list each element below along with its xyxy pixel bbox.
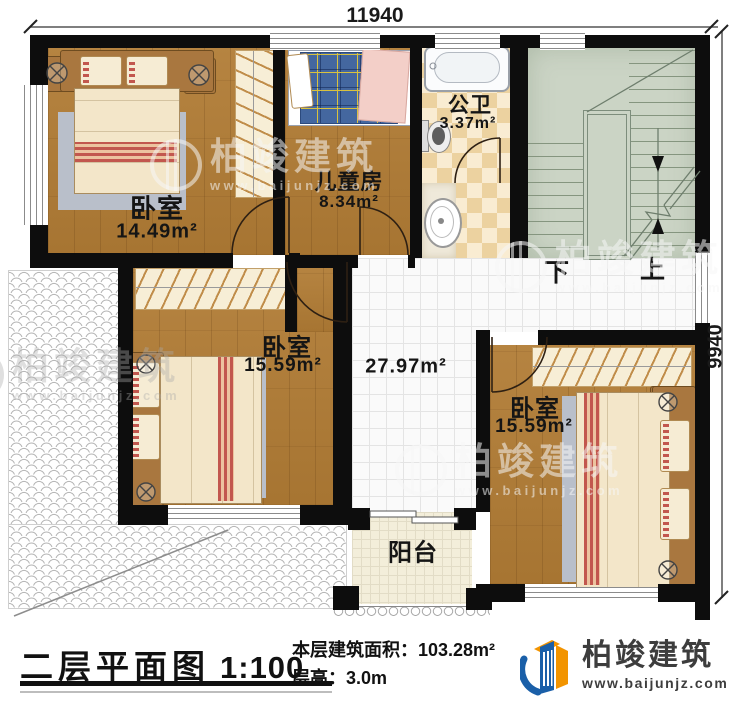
bedroom3-wardrobe <box>532 347 692 387</box>
bedroom1-bed-blanket-stripe <box>75 142 177 162</box>
kids-room-area: 8.34m² <box>319 192 379 212</box>
hall-floor-lower <box>352 258 476 512</box>
bedroom3-pillow-2 <box>660 488 690 540</box>
bathtub-basin <box>434 52 500 83</box>
bedroom2-bed-blanket-stripe <box>218 357 234 501</box>
wall <box>333 255 352 524</box>
kids-bed-pink-blanket <box>358 48 411 123</box>
title-underline-thick <box>20 681 332 686</box>
bathroom-area: 3.37m² <box>440 115 497 133</box>
bedroom2-pillow-1 <box>130 362 160 408</box>
balcony-post <box>454 508 476 530</box>
window <box>525 587 658 600</box>
wall <box>300 505 352 525</box>
balcony-post <box>466 588 492 610</box>
bedroom2-bed-quilt <box>160 356 262 504</box>
stair-treads-right <box>629 50 695 252</box>
wall <box>510 35 528 258</box>
brand-name: 柏竣建筑 <box>582 641 728 671</box>
dimension-top: 11940 <box>325 4 425 28</box>
roof-eave-bottom <box>8 524 347 609</box>
balcony-post <box>333 586 359 610</box>
window <box>270 33 380 50</box>
wall <box>273 48 285 255</box>
bedroom1-bed-quilt <box>74 88 180 194</box>
wall <box>118 262 133 524</box>
floor-area-line: 本层建筑面积：103.28m² <box>292 637 495 665</box>
floor-height-line: 层高：3.0m <box>292 665 495 693</box>
stair-landing-void <box>583 110 631 260</box>
stairs-down-label: 下 <box>544 253 570 289</box>
stairs-up-label: 上 <box>640 250 666 286</box>
hall-area: 27.97m² <box>365 356 447 379</box>
brand-site: www.baijunjz.com <box>582 676 728 690</box>
window <box>435 33 500 50</box>
bedroom2-entry-floor <box>297 268 333 332</box>
watermark-logo-icon <box>0 349 4 401</box>
wall <box>380 35 435 48</box>
wall <box>285 255 297 332</box>
wall <box>658 584 710 602</box>
wall <box>585 35 710 48</box>
sink-drain <box>438 218 444 224</box>
plan-title-text: 二层平面图 <box>20 648 210 685</box>
bedroom3-bed-blanket-stripe <box>584 393 600 585</box>
wall <box>695 35 710 255</box>
bedroom3-area: 15.59m² <box>495 416 573 438</box>
balcony-post <box>348 508 370 530</box>
dimension-right: 9940 <box>705 307 728 387</box>
bedroom2-pillow-2 <box>130 414 160 460</box>
bedroom1-area: 14.49m² <box>116 221 198 244</box>
wall <box>118 505 168 525</box>
wall <box>476 330 490 512</box>
floor-plan-canvas: 11940 9940 卧室 14.49m² 儿童房 8.34m² 公卫 3.37… <box>0 0 750 706</box>
wall <box>410 48 422 258</box>
bedroom1-wardrobe <box>235 50 275 198</box>
window <box>168 508 300 522</box>
wall <box>30 35 270 48</box>
window <box>540 33 585 50</box>
bedroom3-pillow-1 <box>660 420 690 472</box>
bedroom2-area: 15.59m² <box>244 355 322 377</box>
plan-info: 本层建筑面积：103.28m² 层高：3.0m <box>292 637 495 693</box>
bedroom1-pillow-1 <box>80 56 122 86</box>
brand-logo-icon <box>520 634 572 696</box>
window <box>24 85 48 225</box>
stair-treads-left <box>528 143 585 258</box>
bedroom1-pillow-2 <box>126 56 168 86</box>
title-underline-thin <box>20 691 332 693</box>
brand-block: 柏竣建筑 www.baijunjz.com <box>520 634 728 696</box>
wall <box>30 35 48 87</box>
wall <box>538 330 695 345</box>
bedroom2-wardrobe <box>135 268 295 310</box>
balcony-label: 阳台 <box>388 533 438 568</box>
